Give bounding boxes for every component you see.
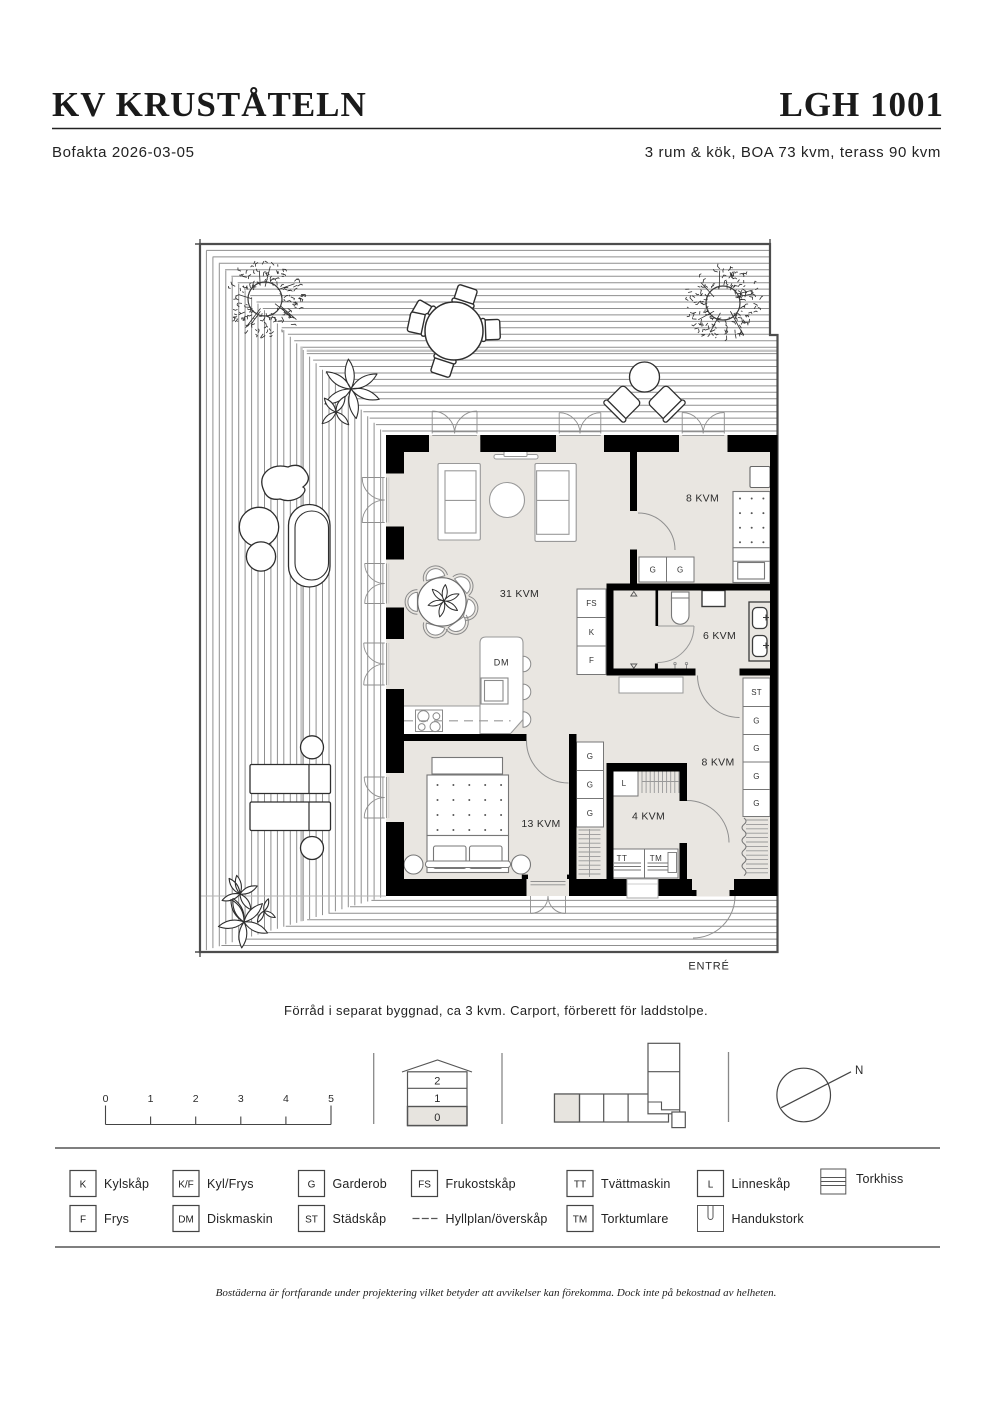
svg-text:Torkhiss: Torkhiss [856, 1172, 903, 1186]
svg-text:ST: ST [305, 1215, 318, 1226]
svg-text:13 KVM: 13 KVM [521, 818, 560, 830]
svg-text:Linneskåp: Linneskåp [732, 1177, 791, 1191]
svg-text:DM: DM [494, 658, 510, 668]
svg-text:Förråd i separat byggnad, ca 3: Förråd i separat byggnad, ca 3 kvm. Carp… [284, 1003, 708, 1018]
svg-text:K: K [589, 628, 595, 637]
svg-text:Hyllplan/överskåp: Hyllplan/överskåp [446, 1212, 548, 1226]
svg-text:L: L [708, 1180, 714, 1191]
svg-text:Handukstork: Handukstork [732, 1212, 805, 1226]
svg-text:G: G [587, 809, 593, 818]
svg-text:N: N [855, 1065, 863, 1077]
svg-text:G: G [587, 752, 593, 761]
svg-text:1: 1 [148, 1093, 154, 1105]
svg-text:G: G [753, 772, 759, 781]
svg-text:ENTRÉ: ENTRÉ [688, 960, 729, 973]
svg-text:5: 5 [328, 1093, 334, 1105]
svg-text:DM: DM [178, 1215, 194, 1226]
svg-text:Tvättmaskin: Tvättmaskin [601, 1177, 671, 1191]
svg-text:2: 2 [434, 1076, 440, 1088]
svg-text:Diskmaskin: Diskmaskin [207, 1212, 273, 1226]
svg-text:K/F: K/F [178, 1180, 194, 1191]
svg-text:G: G [650, 566, 656, 575]
svg-text:8 KVM: 8 KVM [686, 493, 719, 505]
svg-text:TT: TT [574, 1180, 586, 1191]
svg-text:Garderob: Garderob [333, 1177, 387, 1191]
svg-text:8 KVM: 8 KVM [701, 757, 734, 769]
svg-text:4 KVM: 4 KVM [632, 811, 665, 823]
svg-text:Bofakta 2026-03-05: Bofakta 2026-03-05 [52, 144, 195, 161]
svg-text:TT: TT [617, 854, 628, 863]
svg-text:3: 3 [238, 1093, 244, 1105]
svg-text:G: G [753, 717, 759, 726]
svg-text:31 KVM: 31 KVM [500, 588, 539, 600]
svg-text:3 rum & kök, BOA 73 kvm, teras: 3 rum & kök, BOA 73 kvm, terass 90 kvm [645, 144, 941, 161]
svg-text:4: 4 [283, 1093, 289, 1105]
svg-text:G: G [587, 781, 593, 790]
svg-text:Städskåp: Städskåp [333, 1212, 387, 1226]
svg-text:G: G [753, 744, 759, 753]
svg-text:LGH 1001: LGH 1001 [779, 85, 944, 124]
svg-text:TM: TM [650, 854, 663, 863]
svg-text:TM: TM [573, 1215, 587, 1226]
svg-text:Kyl/Frys: Kyl/Frys [207, 1177, 254, 1191]
svg-text:FS: FS [418, 1180, 431, 1191]
svg-text:G: G [753, 799, 759, 808]
svg-text:6 KVM: 6 KVM [703, 630, 736, 642]
svg-text:0: 0 [434, 1112, 440, 1124]
svg-text:Bostäderna är fortfarande unde: Bostäderna är fortfarande under projekte… [216, 1287, 777, 1299]
svg-text:G: G [677, 566, 683, 575]
svg-text:K: K [80, 1180, 87, 1191]
svg-text:2: 2 [193, 1093, 199, 1105]
svg-text:F: F [589, 656, 594, 665]
svg-text:FS: FS [586, 599, 597, 608]
svg-text:G: G [308, 1180, 316, 1191]
svg-text:Kylskåp: Kylskåp [104, 1177, 149, 1191]
svg-text:F: F [80, 1215, 86, 1226]
svg-text:Frys: Frys [104, 1212, 129, 1226]
svg-text:0: 0 [103, 1093, 109, 1105]
svg-text:1: 1 [434, 1093, 440, 1105]
svg-text:KV KRUSTÅTELN: KV KRUSTÅTELN [52, 85, 367, 124]
svg-text:ST: ST [751, 688, 762, 697]
svg-text:L: L [622, 779, 627, 788]
svg-text:Frukostskåp: Frukostskåp [446, 1177, 516, 1191]
svg-text:Torktumlare: Torktumlare [601, 1212, 669, 1226]
